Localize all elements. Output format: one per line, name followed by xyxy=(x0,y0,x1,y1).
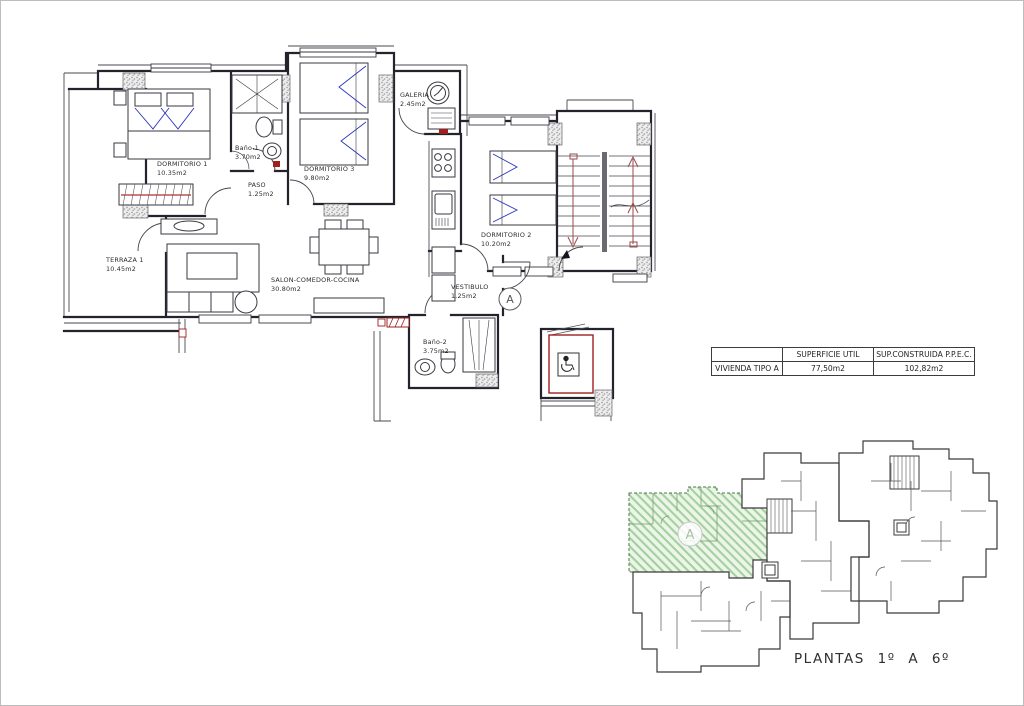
unit-marker-main: A xyxy=(499,288,521,310)
room-label-dormitorio-3: DORMITORIO 3 xyxy=(304,165,355,173)
header-cell-sup-construida: SUP.CONSTRUIDA P.P.E.C. xyxy=(874,348,975,362)
room-label-dormitorio-1: DORMITORIO 1 xyxy=(157,160,208,168)
room-area-dormitorio-1: 10.35m2 xyxy=(157,169,187,177)
cell-vivienda-tipo: VIVIENDA TIPO A xyxy=(712,362,783,376)
area-summary-table: SUPERFICIE UTIL SUP.CONSTRUIDA P.P.E.C. … xyxy=(711,347,975,376)
plantas-caption: PLANTAS 1º A 6º xyxy=(794,651,950,667)
room-label-bano-2: Baño-2 xyxy=(423,338,447,346)
room-area-galeria: 2.45m2 xyxy=(400,100,426,108)
floor-plan-sheet: A TERRAZA 1 10.45m2 DORMITORIO 1 10.35m2… xyxy=(0,0,1024,706)
room-area-salon: 30.80m2 xyxy=(271,285,301,293)
unit-marker-key-letter: A xyxy=(686,528,695,543)
room-area-vestibulo: 1.25m2 xyxy=(451,292,477,300)
room-label-galeria: GALERIA xyxy=(400,91,429,99)
beds-dormitorio-3 xyxy=(300,63,368,165)
kitchen-strip xyxy=(429,141,455,301)
room-label-terraza-1: TERRAZA 1 xyxy=(105,256,144,264)
building-key-plan: A xyxy=(629,441,997,672)
room-label-salon: SALON-COMEDOR-COCINA xyxy=(271,276,360,284)
room-label-vestibulo: VESTIBULO xyxy=(451,283,488,291)
cell-superficie-util-value: 77,50m2 xyxy=(783,362,874,376)
beds-dormitorio-2 xyxy=(490,151,556,225)
room-area-paso: 1.25m2 xyxy=(248,190,274,198)
elevator xyxy=(547,324,593,393)
cell-sup-construida-value: 102,82m2 xyxy=(874,362,975,376)
room-area-terraza-1: 10.45m2 xyxy=(106,265,136,273)
room-area-dormitorio-2: 10.20m2 xyxy=(481,240,511,248)
closet-dormitorio-1 xyxy=(119,184,193,205)
sideboard xyxy=(161,219,217,234)
room-area-dormitorio-3: 9.80m2 xyxy=(304,174,330,182)
stairwell xyxy=(558,152,650,252)
room-label-bano-1: Baño-1 xyxy=(235,144,259,152)
apartment-floor-plan: A TERRAZA 1 10.45m2 DORMITORIO 1 10.35m2… xyxy=(64,46,655,421)
table-header-row: SUPERFICIE UTIL SUP.CONSTRUIDA P.P.E.C. xyxy=(712,348,975,362)
unit-marker-main-letter: A xyxy=(506,293,514,306)
room-area-bano-1: 3.70m2 xyxy=(235,153,261,161)
room-label-dormitorio-2: DORMITORIO 2 xyxy=(481,231,532,239)
table-row: VIVIENDA TIPO A 77,50m2 102,82m2 xyxy=(712,362,975,376)
galeria-equipment xyxy=(427,82,455,134)
bed-dormitorio-1 xyxy=(114,89,210,159)
room-label-paso: PASO xyxy=(248,181,266,189)
room-area-bano-2: 3.75m2 xyxy=(423,347,449,355)
header-cell-empty xyxy=(712,348,783,362)
header-cell-superficie-util: SUPERFICIE UTIL xyxy=(783,348,874,362)
unit-marker-key: A xyxy=(678,522,702,546)
